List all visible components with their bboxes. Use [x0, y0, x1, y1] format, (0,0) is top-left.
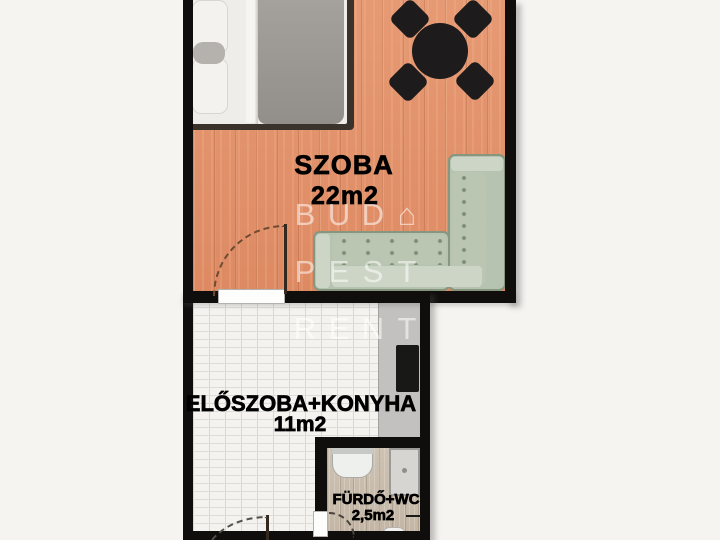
room-label-furdo: FÜRDŐ+WC	[328, 491, 424, 508]
wall-szoba-right	[505, 0, 516, 303]
doorway-furdo	[313, 511, 328, 537]
accent-pillow	[193, 42, 225, 64]
bed-sheet-fold	[246, 0, 258, 124]
leader-line	[406, 515, 421, 517]
door-leaf-szoba	[284, 224, 287, 294]
watermark-letter: N	[356, 300, 390, 357]
sofa-armrest	[451, 157, 503, 171]
shower-drain	[402, 468, 407, 473]
watermark-letter: S	[356, 243, 390, 300]
wall-furdo-top	[315, 437, 430, 448]
watermark-letter: B	[288, 186, 322, 243]
watermark-letter: P	[288, 243, 322, 300]
watermark-letter: U	[322, 186, 356, 243]
room-label-szoba: SZOBA	[244, 150, 444, 181]
watermark-letter: R	[288, 300, 322, 357]
pillow	[192, 58, 228, 114]
watermark-letter: D	[356, 186, 390, 243]
wall-left	[183, 0, 193, 540]
watermark-letter: T	[390, 243, 424, 300]
watermark-house-icon: ⌂	[390, 186, 424, 243]
bathroom-sink-backsplash	[332, 448, 373, 454]
room-area-furdo: 2,5m2	[328, 507, 418, 524]
floorplan: SZOBA 22m2 ELŐSZOBA+KONYHA 11m2 FÜRDŐ+WC…	[0, 0, 720, 540]
watermark-letter: E	[322, 243, 356, 300]
room-area-eloszoba: 11m2	[181, 413, 419, 437]
dining-table	[412, 23, 468, 79]
bed-duvet	[258, 0, 344, 124]
watermark-letter: T	[390, 300, 424, 357]
watermark-letter: E	[322, 300, 356, 357]
watermark: B U D ⌂ P E S T R E N T	[288, 186, 424, 357]
